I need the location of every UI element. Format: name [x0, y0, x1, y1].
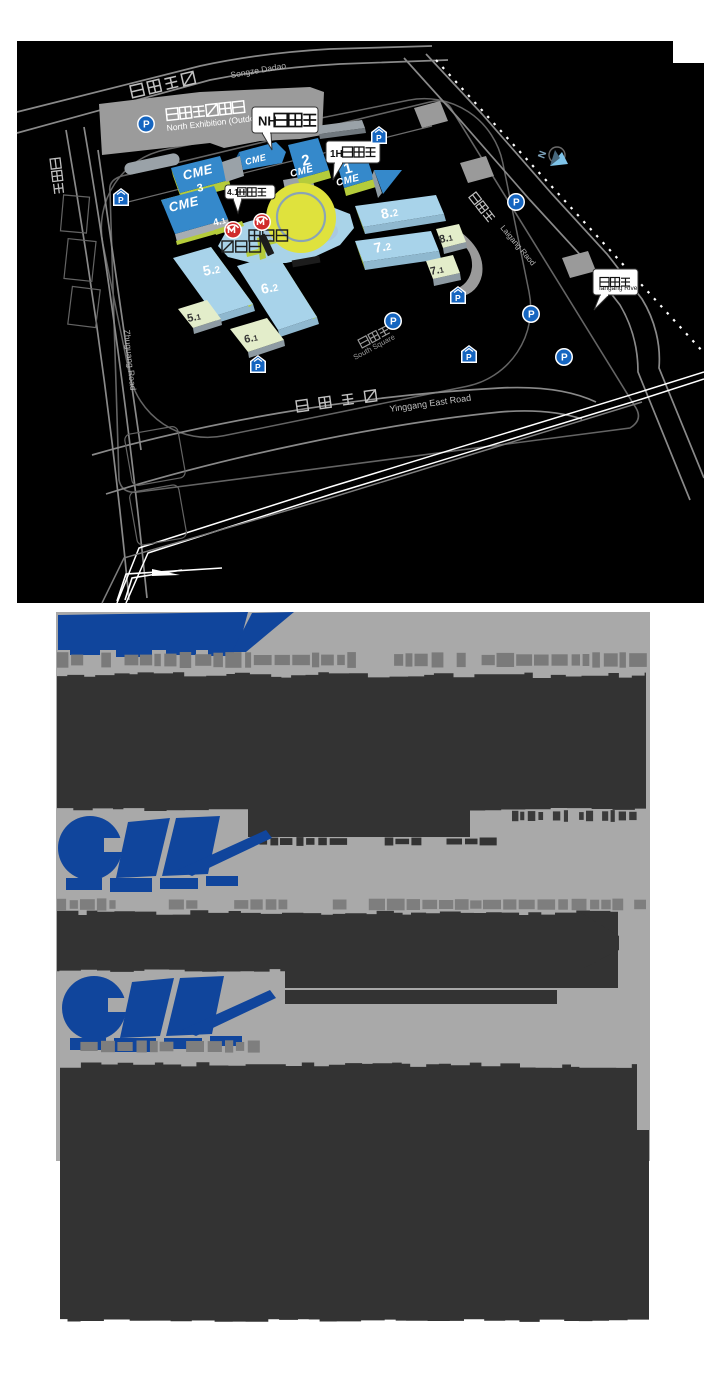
svg-text:P: P — [466, 352, 472, 362]
svg-text:P: P — [455, 293, 461, 303]
svg-text:P: P — [528, 310, 535, 321]
svg-text:1H: 1H — [330, 149, 343, 160]
svg-text:P: P — [561, 353, 568, 364]
svg-text:Iangang Rive: Iangang Rive — [599, 285, 638, 292]
svg-text:P: P — [143, 120, 150, 131]
svg-text:P: P — [513, 198, 520, 209]
svg-text:P: P — [390, 317, 397, 328]
svg-text:P: P — [376, 133, 382, 143]
svg-text:P: P — [255, 362, 261, 372]
svg-text:P: P — [118, 195, 124, 205]
